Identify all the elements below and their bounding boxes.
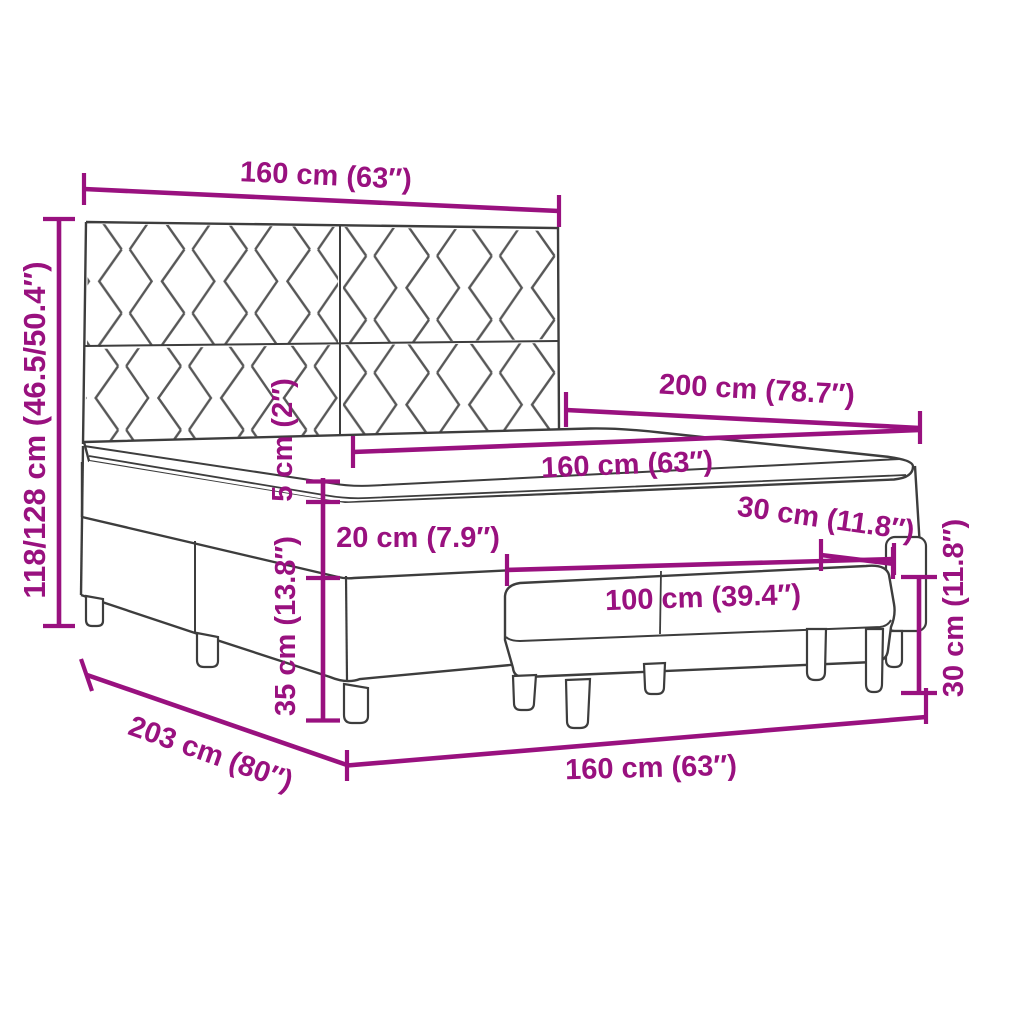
svg-text:118/128 cm (46.5/50.4″): 118/128 cm (46.5/50.4″): [17, 261, 52, 598]
svg-text:35 cm (13.8″): 35 cm (13.8″): [270, 536, 302, 716]
svg-text:5 cm (2″): 5 cm (2″): [267, 378, 299, 502]
svg-text:30 cm (11.8″): 30 cm (11.8″): [938, 519, 970, 697]
svg-text:20 cm (7.9″): 20 cm (7.9″): [336, 522, 500, 554]
svg-text:100 cm (39.4″): 100 cm (39.4″): [605, 579, 802, 617]
svg-text:160 cm (63″): 160 cm (63″): [565, 750, 738, 786]
